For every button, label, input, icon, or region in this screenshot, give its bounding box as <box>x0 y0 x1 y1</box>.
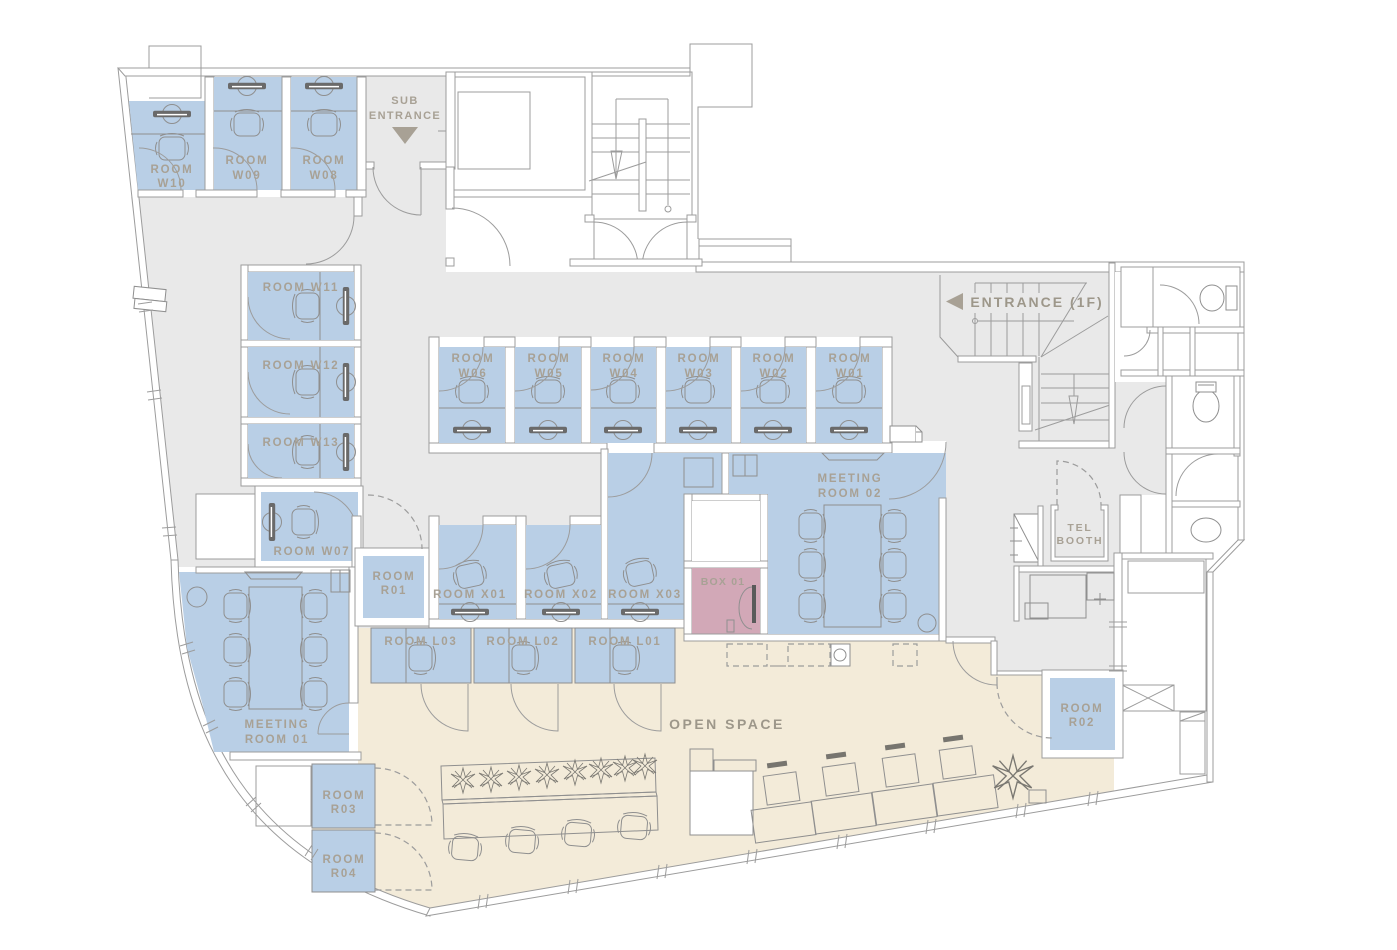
svg-text:ROOM L03: ROOM L03 <box>384 636 457 648</box>
svg-text:W02: W02 <box>759 368 788 380</box>
svg-text:R02: R02 <box>1069 717 1096 729</box>
svg-text:MEETING: MEETING <box>245 719 310 731</box>
svg-text:W06: W06 <box>458 368 487 380</box>
svg-text:ROOM L02: ROOM L02 <box>486 636 559 648</box>
svg-text:W03: W03 <box>684 368 713 380</box>
svg-text:ROOM: ROOM <box>753 353 796 365</box>
svg-text:OPEN SPACE: OPEN SPACE <box>669 716 785 732</box>
svg-text:W08: W08 <box>309 170 338 182</box>
svg-text:ENTRANCE (1F): ENTRANCE (1F) <box>970 294 1103 310</box>
svg-text:SUB: SUB <box>391 95 418 107</box>
svg-text:R01: R01 <box>381 585 408 597</box>
svg-text:ROOM W11: ROOM W11 <box>263 282 339 294</box>
svg-text:ROOM W07: ROOM W07 <box>273 546 350 558</box>
svg-text:ROOM: ROOM <box>303 155 346 167</box>
svg-text:ROOM: ROOM <box>603 353 646 365</box>
svg-text:ROOM X02: ROOM X02 <box>524 589 598 601</box>
svg-text:ROOM: ROOM <box>373 571 416 583</box>
svg-text:ENTRANCE: ENTRANCE <box>369 110 441 122</box>
svg-text:ROOM: ROOM <box>151 164 194 176</box>
svg-text:ROOM W12: ROOM W12 <box>262 360 339 372</box>
svg-text:ROOM X03: ROOM X03 <box>608 589 682 601</box>
svg-text:W04: W04 <box>609 368 638 380</box>
svg-text:BOOTH: BOOTH <box>1057 535 1104 547</box>
svg-text:ROOM: ROOM <box>323 854 366 866</box>
svg-text:ROOM: ROOM <box>323 790 366 802</box>
svg-text:R03: R03 <box>331 804 358 816</box>
svg-text:TEL: TEL <box>1067 522 1092 534</box>
svg-text:ROOM: ROOM <box>829 353 872 365</box>
svg-text:W09: W09 <box>232 170 261 182</box>
svg-text:BOX 01: BOX 01 <box>701 576 746 588</box>
svg-text:ROOM W13: ROOM W13 <box>262 437 339 449</box>
svg-text:ROOM: ROOM <box>452 353 495 365</box>
svg-text:ROOM L01: ROOM L01 <box>588 636 661 648</box>
svg-text:ROOM: ROOM <box>528 353 571 365</box>
svg-text:ROOM: ROOM <box>678 353 721 365</box>
svg-text:ROOM: ROOM <box>226 155 269 167</box>
svg-text:ROOM 02: ROOM 02 <box>818 488 882 500</box>
svg-text:ROOM 01: ROOM 01 <box>245 734 309 746</box>
svg-text:R04: R04 <box>331 868 358 880</box>
svg-text:ROOM: ROOM <box>1061 703 1104 715</box>
svg-text:MEETING: MEETING <box>818 473 883 485</box>
svg-text:W01: W01 <box>835 368 864 380</box>
svg-text:W05: W05 <box>534 368 563 380</box>
svg-text:W10: W10 <box>157 178 186 190</box>
svg-text:ROOM X01: ROOM X01 <box>433 589 507 601</box>
